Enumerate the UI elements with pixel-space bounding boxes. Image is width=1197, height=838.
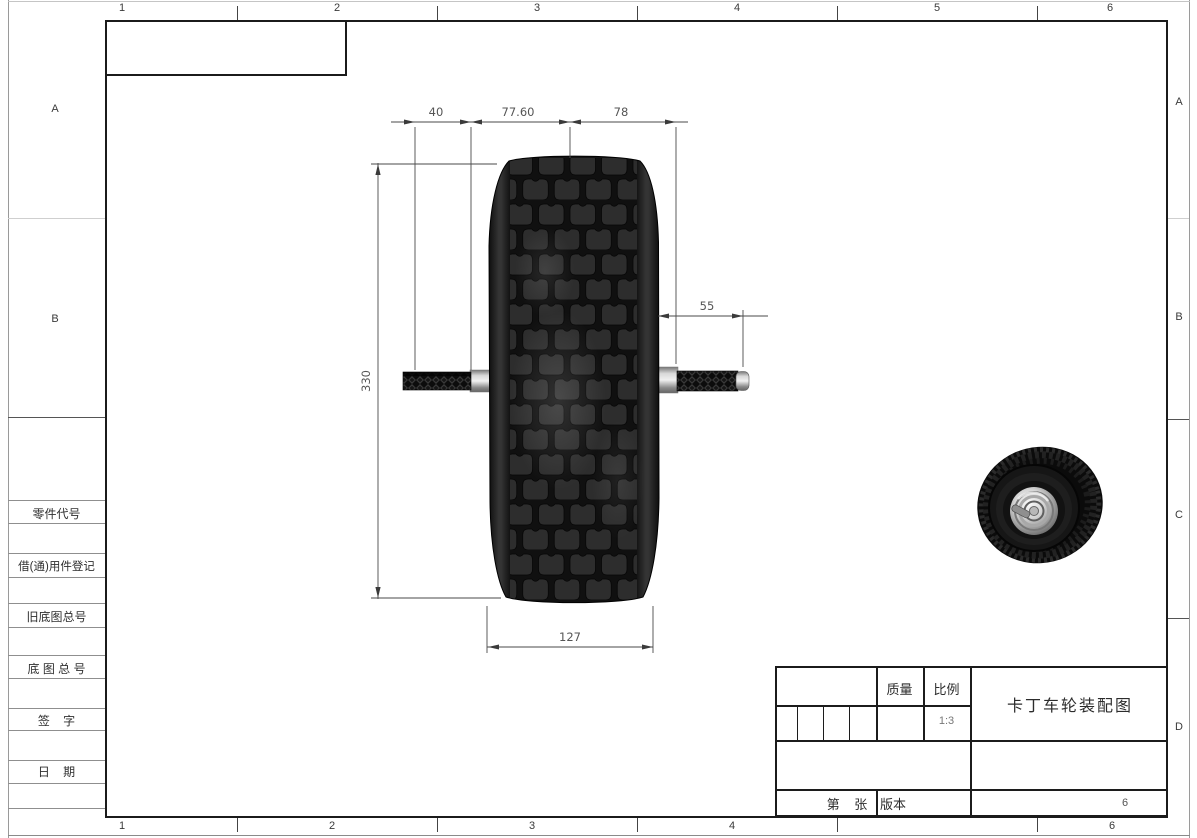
dim-55: 55: [700, 299, 715, 313]
tire-highlight: [515, 227, 575, 317]
wheel-3d-view: [965, 433, 1115, 576]
dim-77-60: 77.60: [502, 105, 535, 119]
axle-left: [403, 370, 490, 392]
drawing-canvas: 40 77.60 78 330 55 127: [0, 0, 1197, 838]
tire-highlight: [592, 420, 644, 540]
cad-drawing-sheet: 1 2 3 4 5 6 1 2 3 4 6 A B A B C D 零件代号 借…: [0, 0, 1197, 838]
dim-330: 330: [359, 370, 373, 392]
tire-sidewall-right: [634, 158, 660, 606]
dim-127: 127: [559, 630, 581, 644]
axle-right: [655, 367, 749, 393]
dim-40: 40: [429, 105, 444, 119]
dim-78: 78: [614, 105, 629, 119]
wheel-front-view: [488, 156, 660, 606]
tire-highlight: [510, 310, 606, 490]
